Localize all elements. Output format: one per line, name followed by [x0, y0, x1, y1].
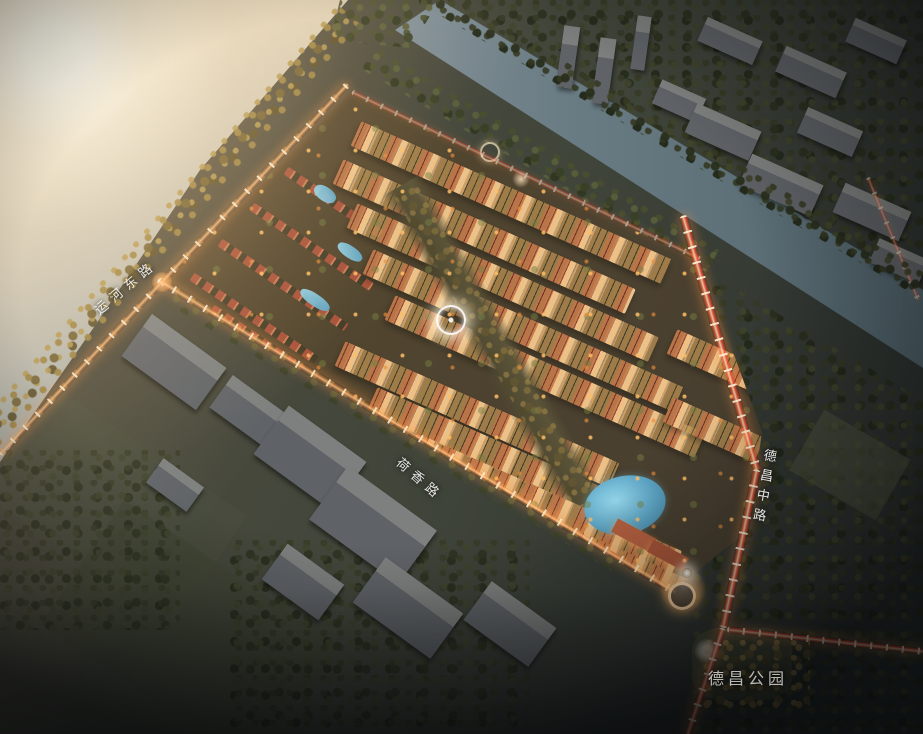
- south-gate-glow: [660, 566, 706, 612]
- warehouse: [353, 557, 464, 659]
- tower-row: [335, 341, 620, 488]
- east-park-trees: [0, 0, 923, 734]
- villa-row: [249, 203, 373, 291]
- tower-row: [363, 249, 685, 412]
- west-gate-glow: [152, 272, 172, 292]
- field-patch: [0, 387, 247, 623]
- city-building: [630, 15, 651, 70]
- city-building: [591, 37, 616, 105]
- site-light-sprinkle: [0, 0, 923, 734]
- perimeter-slab-row: [407, 433, 682, 574]
- city-building: [797, 107, 863, 157]
- warehouse: [464, 581, 557, 667]
- ferris-wheel: [436, 305, 466, 335]
- spine-trees: [393, 182, 626, 559]
- villa-stream: [311, 181, 339, 206]
- garden-spine: [383, 174, 636, 568]
- canal-far-bank-trees: [418, 0, 923, 297]
- headland-trees: [330, 0, 440, 48]
- city-building: [556, 25, 580, 89]
- site-ground: [0, 0, 923, 734]
- city-building: [738, 154, 823, 217]
- park-lawn: [692, 628, 792, 700]
- site-lake: [579, 468, 671, 542]
- gate-beacon: [682, 568, 692, 578]
- city-building: [652, 79, 706, 122]
- field-trees: [230, 540, 530, 730]
- park-plaza: [694, 638, 720, 664]
- warehouse: [122, 314, 227, 410]
- city-building: [833, 183, 912, 242]
- road-dechang-upper: [679, 214, 762, 471]
- development-site: [0, 0, 923, 734]
- tower-row: [367, 387, 652, 534]
- road-dechang-lower: [719, 469, 762, 629]
- roundabout: [668, 582, 696, 610]
- aerial-render-scene: 运河东路 荷香路 德昌中路 德昌公园: [0, 0, 923, 734]
- vignette: [0, 0, 923, 734]
- warehouse: [262, 544, 344, 621]
- commercial-building: [647, 539, 689, 570]
- tower-row: [385, 295, 707, 458]
- city-street: [866, 177, 921, 301]
- perimeter-slab-row: [501, 521, 692, 622]
- road-canal-side: [351, 89, 702, 261]
- villa-stream: [335, 239, 365, 265]
- villa-row: [283, 167, 388, 242]
- warehouse: [146, 458, 204, 512]
- field-patch: [40, 500, 339, 734]
- commercial-building: [611, 519, 657, 553]
- villa-row: [217, 239, 348, 331]
- warehouse: [209, 375, 284, 445]
- canal-near-bank-trees: [361, 47, 719, 272]
- warehouse: [309, 466, 437, 584]
- road-dechang-exit: [684, 627, 727, 734]
- river-water: [0, 0, 923, 734]
- city-building: [685, 103, 762, 161]
- road-label-yunhe-east: 运河东路: [90, 255, 160, 318]
- road-hexiang: [156, 277, 678, 596]
- road-park-south: [727, 626, 923, 655]
- park-lake-water: [0, 0, 923, 734]
- city-building: [697, 17, 762, 65]
- road-label-dechang-middle: 德昌中路: [744, 447, 779, 541]
- warehouse: [254, 406, 367, 511]
- road-yunhe-east: [0, 82, 350, 457]
- tower-row: [333, 159, 636, 314]
- sun-glare: [0, 0, 923, 734]
- east-lawn: [789, 410, 911, 521]
- river-bank-trees: [0, 4, 360, 449]
- tower-row: [347, 203, 659, 362]
- canal-water: [0, 0, 923, 734]
- city-building: [869, 238, 923, 284]
- tower-row: [667, 329, 769, 394]
- villa-pond: [298, 286, 333, 315]
- park-label-dechang: 德昌公园: [708, 665, 788, 689]
- perimeter-slab-row: [453, 479, 691, 602]
- commercial-building: [585, 540, 623, 568]
- dechang-park-trees: [0, 0, 923, 734]
- city-building: [775, 46, 847, 98]
- hexiang-south-trees: [166, 289, 620, 571]
- villa-row: [189, 273, 318, 364]
- park-gold-trees: [700, 640, 810, 710]
- road-label-hexiang: 荷香路: [393, 453, 448, 505]
- round-plaza: [480, 142, 500, 162]
- city-building: [845, 18, 907, 65]
- villa-row: [209, 305, 305, 374]
- tower-row: [663, 397, 765, 462]
- field-trees: [0, 450, 180, 630]
- tower-row: [351, 121, 673, 284]
- city-far-bank-trees: [0, 0, 923, 734]
- north-gate-glow: [512, 170, 530, 188]
